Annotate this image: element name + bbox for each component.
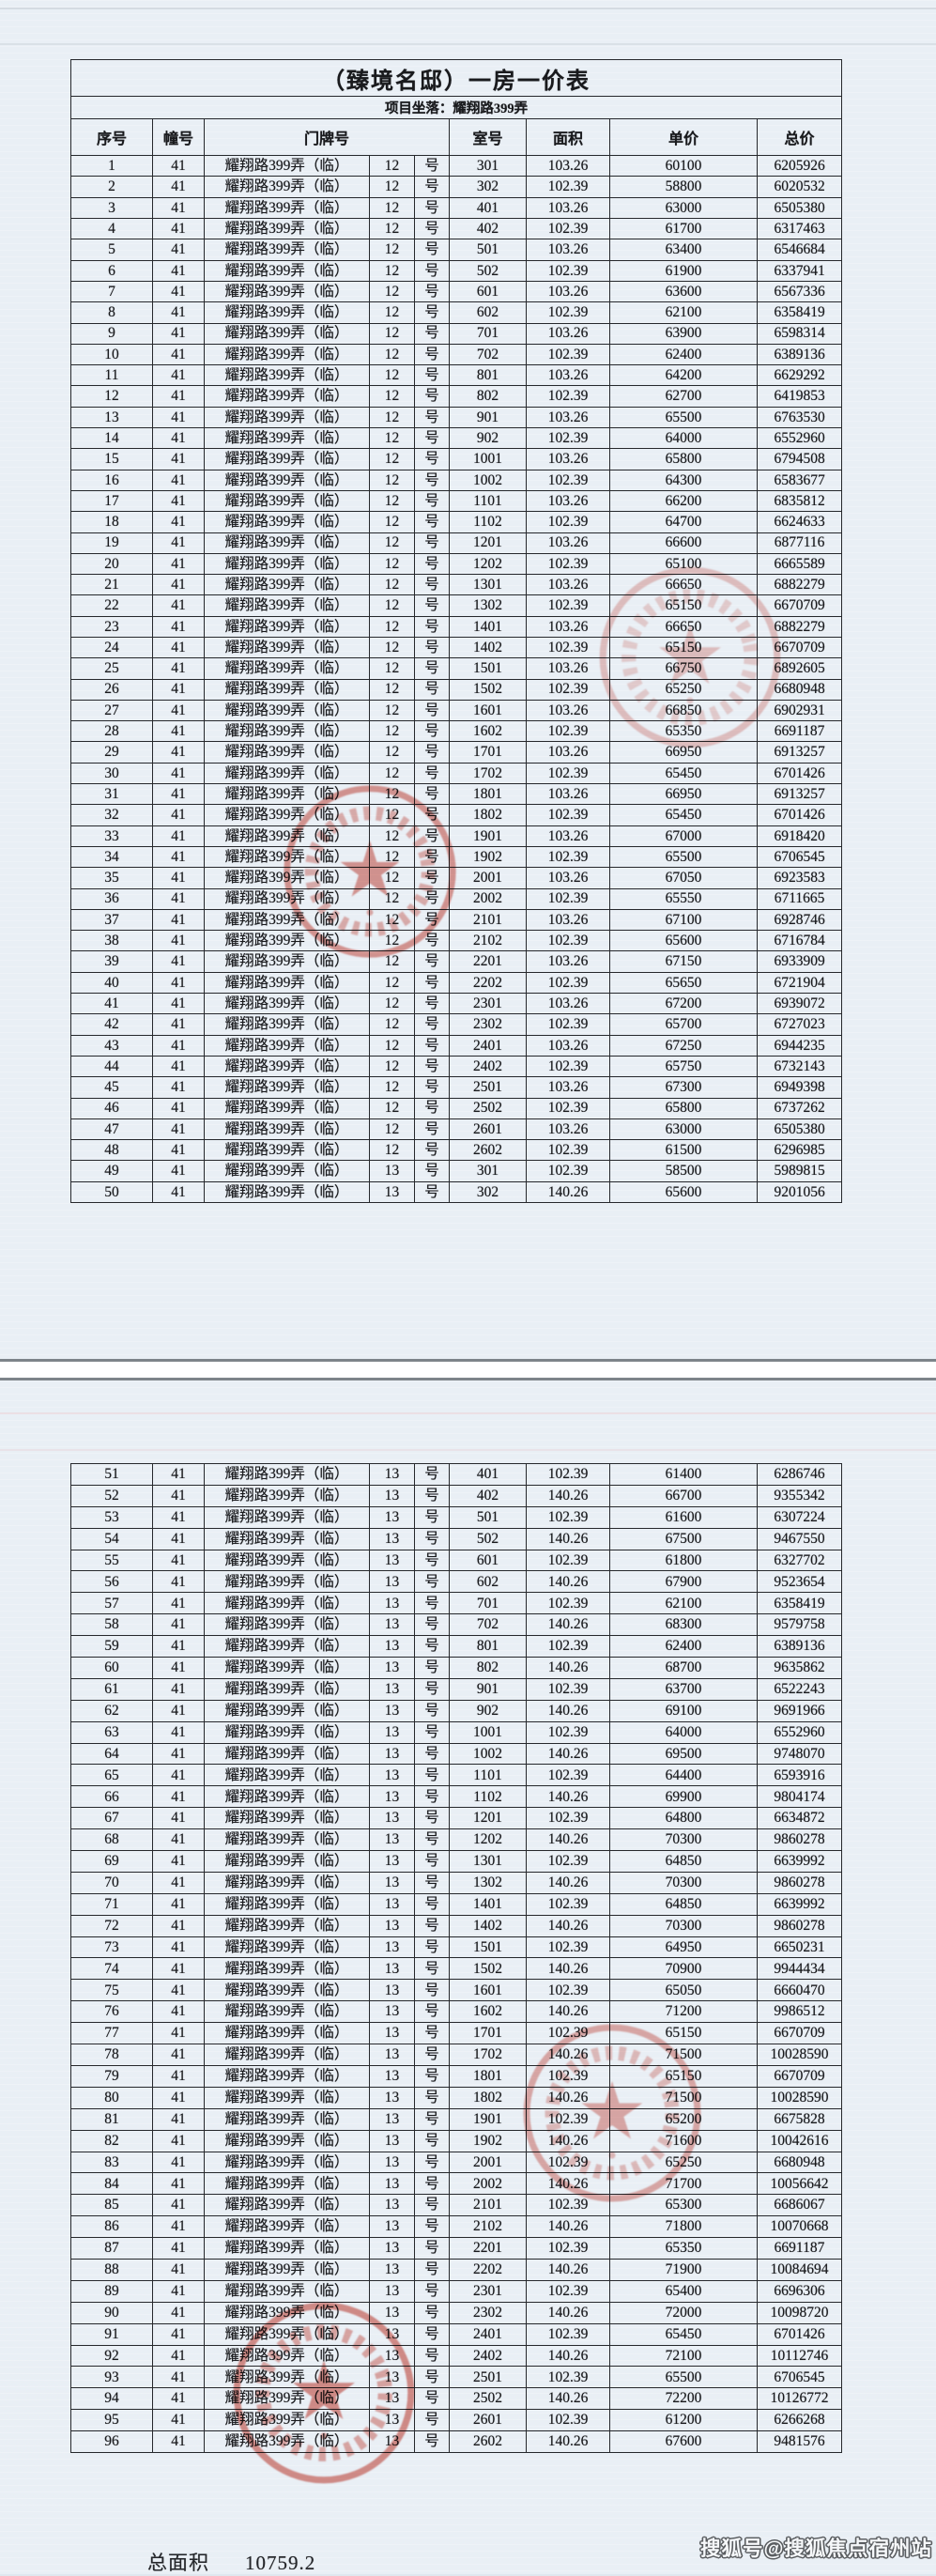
unit-price-cell: 64400 xyxy=(610,1765,758,1786)
street-cell: 耀翔路399弄（临） xyxy=(205,260,370,281)
room-cell: 1801 xyxy=(450,784,527,805)
street-cell: 耀翔路399弄（临） xyxy=(205,1464,370,1486)
door-suffix-cell: 号 xyxy=(415,2259,450,2280)
street-cell: 耀翔路399弄（临） xyxy=(205,2238,370,2260)
street-cell: 耀翔路399弄（临） xyxy=(205,742,370,763)
seq-cell: 74 xyxy=(71,1958,153,1980)
door-number-cell: 12 xyxy=(370,532,415,553)
area-cell: 102.39 xyxy=(527,721,610,742)
street-cell: 耀翔路399弄（临） xyxy=(205,1593,370,1614)
table-row: 4941耀翔路399弄（临）13号301102.39585005989815 xyxy=(71,1161,842,1181)
door-number-cell: 12 xyxy=(370,365,415,386)
table-row: 6741耀翔路399弄（临）13号1201102.39648006634872 xyxy=(71,1808,842,1829)
street-cell: 耀翔路399弄（临） xyxy=(205,239,370,260)
door-suffix-cell: 号 xyxy=(415,2216,450,2238)
area-cell: 102.39 xyxy=(527,1056,610,1076)
street-cell: 耀翔路399弄（临） xyxy=(205,616,370,637)
seq-cell: 60 xyxy=(71,1658,153,1679)
building-cell: 41 xyxy=(153,1571,205,1593)
building-cell: 41 xyxy=(153,679,205,700)
street-cell: 耀翔路399弄（临） xyxy=(205,1118,370,1139)
col-header-total-price: 总价 xyxy=(758,118,842,155)
unit-price-cell: 63000 xyxy=(610,1118,758,1139)
street-cell: 耀翔路399弄（临） xyxy=(205,2087,370,2108)
door-suffix-cell: 号 xyxy=(415,721,450,742)
street-cell: 耀翔路399弄（临） xyxy=(205,470,370,490)
door-number-cell: 13 xyxy=(370,1593,415,1614)
table-row: 9641耀翔路399弄（临）13号2602140.26676009481576 xyxy=(71,2431,842,2453)
room-cell: 1301 xyxy=(450,1851,527,1873)
unit-price-cell: 65450 xyxy=(610,763,758,783)
street-cell: 耀翔路399弄（临） xyxy=(205,532,370,553)
unit-price-cell: 67600 xyxy=(610,2431,758,2453)
building-cell: 41 xyxy=(153,658,205,679)
door-suffix-cell: 号 xyxy=(415,1893,450,1915)
unit-price-cell: 64800 xyxy=(610,1808,758,1829)
street-cell: 耀翔路399弄（临） xyxy=(205,658,370,679)
room-cell: 1502 xyxy=(450,679,527,700)
scanned-page-2: 5141耀翔路399弄（临）13号401102.3961400628674652… xyxy=(0,1381,936,2574)
door-number-cell: 13 xyxy=(370,2345,415,2367)
table-row: 7641耀翔路399弄（临）13号1602140.26712009986512 xyxy=(71,2001,842,2023)
table-row: 9141耀翔路399弄（临）13号2401102.39654506701426 xyxy=(71,2323,842,2345)
area-cell: 140.26 xyxy=(527,2001,610,2023)
street-cell: 耀翔路399弄（临） xyxy=(205,721,370,742)
unit-price-cell: 61500 xyxy=(610,1140,758,1161)
door-suffix-cell: 号 xyxy=(415,197,450,218)
total-price-cell: 9355342 xyxy=(758,1485,842,1506)
door-number-cell: 12 xyxy=(370,407,415,427)
unit-price-cell: 65350 xyxy=(610,2238,758,2260)
table-row: 2441耀翔路399弄（临）12号1402102.39651506670709 xyxy=(71,638,842,658)
area-cell: 103.26 xyxy=(527,825,610,846)
table-row: 2941耀翔路399弄（临）12号1701103.26669506913257 xyxy=(71,742,842,763)
table-row: 2741耀翔路399弄（临）12号1601103.26668506902931 xyxy=(71,700,842,720)
total-price-cell: 6020532 xyxy=(758,177,842,197)
total-price-cell: 6598314 xyxy=(758,323,842,344)
table-row: 9041耀翔路399弄（临）13号2302140.267200010098720 xyxy=(71,2302,842,2323)
area-cell: 103.26 xyxy=(527,281,610,301)
total-price-cell: 6794508 xyxy=(758,449,842,470)
room-cell: 1001 xyxy=(450,1721,527,1743)
building-cell: 41 xyxy=(153,532,205,553)
door-number-cell: 12 xyxy=(370,470,415,490)
table-row: 4441耀翔路399弄（临）12号2402102.39657506732143 xyxy=(71,1056,842,1076)
street-cell: 耀翔路399弄（临） xyxy=(205,1743,370,1765)
door-suffix-cell: 号 xyxy=(415,2388,450,2410)
door-suffix-cell: 号 xyxy=(415,1678,450,1700)
room-cell: 1202 xyxy=(450,553,527,574)
unit-price-cell: 69900 xyxy=(610,1786,758,1808)
seq-cell: 41 xyxy=(71,994,153,1014)
unit-price-cell: 66750 xyxy=(610,658,758,679)
area-cell: 140.26 xyxy=(527,2044,610,2066)
area-cell: 102.39 xyxy=(527,1464,610,1486)
seq-cell: 91 xyxy=(71,2323,153,2345)
room-cell: 1001 xyxy=(450,449,527,470)
street-cell: 耀翔路399弄（临） xyxy=(205,931,370,951)
street-cell: 耀翔路399弄（临） xyxy=(205,1181,370,1202)
seq-cell: 52 xyxy=(71,1485,153,1506)
seq-cell: 5 xyxy=(71,239,153,260)
door-suffix-cell: 号 xyxy=(415,1980,450,2001)
table-row: 6341耀翔路399弄（临）13号1001102.39640006552960 xyxy=(71,1721,842,1743)
table-row: 3741耀翔路399弄（临）12号2101103.26671006928746 xyxy=(71,909,842,930)
seq-cell: 57 xyxy=(71,1593,153,1614)
area-cell: 103.26 xyxy=(527,742,610,763)
unit-price-cell: 65800 xyxy=(610,449,758,470)
room-cell: 1802 xyxy=(450,2087,527,2108)
door-number-cell: 12 xyxy=(370,868,415,888)
table-row: 8941耀翔路399弄（临）13号2301102.39654006696306 xyxy=(71,2280,842,2302)
unit-price-cell: 65150 xyxy=(610,2065,758,2087)
table-row: 1341耀翔路399弄（临）12号901103.26655006763530 xyxy=(71,407,842,427)
room-cell: 701 xyxy=(450,323,527,344)
door-number-cell: 13 xyxy=(370,2023,415,2044)
street-cell: 耀翔路399弄（临） xyxy=(205,449,370,470)
room-cell: 1101 xyxy=(450,490,527,511)
building-cell: 41 xyxy=(153,616,205,637)
door-number-cell: 12 xyxy=(370,575,415,595)
building-cell: 41 xyxy=(153,512,205,532)
room-cell: 2402 xyxy=(450,1056,527,1076)
building-cell: 41 xyxy=(153,2001,205,2023)
door-number-cell: 12 xyxy=(370,909,415,930)
door-number-cell: 12 xyxy=(370,700,415,720)
room-cell: 1102 xyxy=(450,1786,527,1808)
door-number-cell: 12 xyxy=(370,260,415,281)
door-number-cell: 12 xyxy=(370,638,415,658)
street-cell: 耀翔路399弄（临） xyxy=(205,2388,370,2410)
street-cell: 耀翔路399弄（临） xyxy=(205,2410,370,2431)
area-cell: 140.26 xyxy=(527,2130,610,2152)
seq-cell: 17 xyxy=(71,490,153,511)
total-price-cell: 6680948 xyxy=(758,679,842,700)
total-price-cell: 9986512 xyxy=(758,2001,842,2023)
street-cell: 耀翔路399弄（临） xyxy=(205,1658,370,1679)
door-suffix-cell: 号 xyxy=(415,1506,450,1528)
area-cell: 102.39 xyxy=(527,302,610,323)
total-price-cell: 6727023 xyxy=(758,1014,842,1035)
unit-price-cell: 68300 xyxy=(610,1614,758,1636)
door-number-cell: 12 xyxy=(370,721,415,742)
room-cell: 1902 xyxy=(450,2130,527,2152)
street-cell: 耀翔路399弄（临） xyxy=(205,2023,370,2044)
total-price-cell: 6882279 xyxy=(758,575,842,595)
seq-cell: 8 xyxy=(71,302,153,323)
total-price-cell: 10042616 xyxy=(758,2130,842,2152)
door-suffix-cell: 号 xyxy=(415,1915,450,1936)
room-cell: 302 xyxy=(450,1181,527,1202)
unit-price-cell: 72200 xyxy=(610,2388,758,2410)
seq-cell: 96 xyxy=(71,2431,153,2453)
unit-price-cell: 64200 xyxy=(610,365,758,386)
unit-price-cell: 67900 xyxy=(610,1571,758,1593)
total-price-cell: 6716784 xyxy=(758,931,842,951)
door-number-cell: 12 xyxy=(370,323,415,344)
total-price-cell: 6701426 xyxy=(758,763,842,783)
street-cell: 耀翔路399弄（临） xyxy=(205,2431,370,2453)
total-price-cell: 6763530 xyxy=(758,407,842,427)
table-row: 8141耀翔路399弄（临）13号1901102.39652006675828 xyxy=(71,2108,842,2130)
total-price-cell: 6701426 xyxy=(758,2323,842,2345)
street-cell: 耀翔路399弄（临） xyxy=(205,1980,370,2001)
door-suffix-cell: 号 xyxy=(415,1808,450,1829)
seq-cell: 68 xyxy=(71,1829,153,1851)
total-price-cell: 9860278 xyxy=(758,1872,842,1893)
total-price-cell: 6337941 xyxy=(758,260,842,281)
seq-cell: 51 xyxy=(71,1464,153,1486)
seq-cell: 15 xyxy=(71,449,153,470)
total-price-cell: 6882279 xyxy=(758,616,842,637)
seq-cell: 37 xyxy=(71,909,153,930)
building-cell: 41 xyxy=(153,239,205,260)
street-cell: 耀翔路399弄（临） xyxy=(205,512,370,532)
table-row: 8541耀翔路399弄（临）13号2101102.39653006686067 xyxy=(71,2195,842,2216)
area-cell: 102.39 xyxy=(527,260,610,281)
total-price-cell: 6546684 xyxy=(758,239,842,260)
total-price-cell: 6721904 xyxy=(758,972,842,993)
area-cell: 140.26 xyxy=(527,1872,610,1893)
door-suffix-cell: 号 xyxy=(415,1077,450,1098)
building-cell: 41 xyxy=(153,1636,205,1658)
door-number-cell: 13 xyxy=(370,1636,415,1658)
room-cell: 2301 xyxy=(450,994,527,1014)
area-cell: 140.26 xyxy=(527,1571,610,1593)
total-price-cell: 9635862 xyxy=(758,1658,842,1679)
door-suffix-cell: 号 xyxy=(415,616,450,637)
total-price-cell: 6296985 xyxy=(758,1140,842,1161)
unit-price-cell: 65100 xyxy=(610,553,758,574)
table-row: 7441耀翔路399弄（临）13号1502140.26709009944434 xyxy=(71,1958,842,1980)
unit-price-cell: 65350 xyxy=(610,721,758,742)
door-suffix-cell: 号 xyxy=(415,2044,450,2066)
table-row: 741耀翔路399弄（临）12号601103.26636006567336 xyxy=(71,281,842,301)
area-cell: 140.26 xyxy=(527,2345,610,2367)
unit-price-cell: 65700 xyxy=(610,1014,758,1035)
door-number-cell: 12 xyxy=(370,156,415,177)
unit-price-cell: 71600 xyxy=(610,2130,758,2152)
door-number-cell: 12 xyxy=(370,1014,415,1035)
seq-cell: 1 xyxy=(71,156,153,177)
unit-price-cell: 65200 xyxy=(610,2108,758,2130)
total-price-cell: 6629292 xyxy=(758,365,842,386)
area-cell: 103.26 xyxy=(527,575,610,595)
building-cell: 41 xyxy=(153,868,205,888)
door-number-cell: 13 xyxy=(370,1658,415,1679)
street-cell: 耀翔路399弄（临） xyxy=(205,951,370,972)
area-cell: 102.39 xyxy=(527,1593,610,1614)
area-cell: 102.39 xyxy=(527,470,610,490)
seq-cell: 24 xyxy=(71,638,153,658)
col-header-building: 幢号 xyxy=(153,118,205,155)
area-cell: 140.26 xyxy=(527,1528,610,1550)
street-cell: 耀翔路399弄（临） xyxy=(205,575,370,595)
area-cell: 102.39 xyxy=(527,2367,610,2388)
door-suffix-cell: 号 xyxy=(415,2238,450,2260)
door-suffix-cell: 号 xyxy=(415,2345,450,2367)
seq-cell: 69 xyxy=(71,1851,153,1873)
area-cell: 103.26 xyxy=(527,868,610,888)
table-row: 2341耀翔路399弄（临）12号1401103.26666506882279 xyxy=(71,616,842,637)
street-cell: 耀翔路399弄（临） xyxy=(205,2130,370,2152)
total-price-cell: 10070668 xyxy=(758,2216,842,2238)
table-row: 9241耀翔路399弄（临）13号2402140.267210010112746 xyxy=(71,2345,842,2367)
door-number-cell: 12 xyxy=(370,344,415,364)
scanned-page-1: （臻境名邸）一房一价表 项目坐落：耀翔路399弄 序号 幢号 门牌号 室号 面积… xyxy=(0,0,936,1359)
room-cell: 2501 xyxy=(450,1077,527,1098)
door-suffix-cell: 号 xyxy=(415,1464,450,1486)
building-cell: 41 xyxy=(153,1872,205,1893)
table-row: 1541耀翔路399弄（临）12号1001103.26658006794508 xyxy=(71,449,842,470)
street-cell: 耀翔路399弄（临） xyxy=(205,846,370,867)
street-cell: 耀翔路399弄（临） xyxy=(205,1571,370,1593)
building-cell: 41 xyxy=(153,1550,205,1571)
table-row: 7941耀翔路399弄（临）13号1801102.39651506670709 xyxy=(71,2065,842,2087)
door-suffix-cell: 号 xyxy=(415,2065,450,2087)
street-cell: 耀翔路399弄（临） xyxy=(205,2044,370,2066)
room-cell: 1501 xyxy=(450,1936,527,1958)
door-suffix-cell: 号 xyxy=(415,784,450,805)
street-cell: 耀翔路399弄（临） xyxy=(205,638,370,658)
seq-cell: 75 xyxy=(71,1980,153,2001)
seq-cell: 34 xyxy=(71,846,153,867)
total-price-cell: 6835812 xyxy=(758,490,842,511)
seq-cell: 36 xyxy=(71,888,153,909)
total-price-cell: 9691966 xyxy=(758,1700,842,1721)
room-cell: 1702 xyxy=(450,763,527,783)
room-cell: 502 xyxy=(450,260,527,281)
table-row: 1041耀翔路399弄（临）12号702102.39624006389136 xyxy=(71,344,842,364)
door-suffix-cell: 号 xyxy=(415,512,450,532)
street-cell: 耀翔路399弄（临） xyxy=(205,1936,370,1958)
street-cell: 耀翔路399弄（临） xyxy=(205,2302,370,2323)
total-price-cell: 9860278 xyxy=(758,1829,842,1851)
seq-cell: 38 xyxy=(71,931,153,951)
unit-price-cell: 68700 xyxy=(610,1658,758,1679)
street-cell: 耀翔路399弄（临） xyxy=(205,1161,370,1181)
area-cell: 102.39 xyxy=(527,177,610,197)
door-number-cell: 12 xyxy=(370,951,415,972)
table-row: 3441耀翔路399弄（临）12号1902102.39655006706545 xyxy=(71,846,842,867)
table-row: 7541耀翔路399弄（临）13号1601102.39650506660470 xyxy=(71,1980,842,2001)
room-cell: 902 xyxy=(450,1700,527,1721)
seq-cell: 90 xyxy=(71,2302,153,2323)
area-cell: 103.26 xyxy=(527,700,610,720)
room-cell: 402 xyxy=(450,1485,527,1506)
door-suffix-cell: 号 xyxy=(415,1571,450,1593)
building-cell: 41 xyxy=(153,1118,205,1139)
door-number-cell: 13 xyxy=(370,2108,415,2130)
area-cell: 102.39 xyxy=(527,1161,610,1181)
area-cell: 102.39 xyxy=(527,638,610,658)
seq-cell: 80 xyxy=(71,2087,153,2108)
total-price-cell: 6933909 xyxy=(758,951,842,972)
seq-cell: 58 xyxy=(71,1614,153,1636)
table-row: 5841耀翔路399弄（临）13号702140.26683009579758 xyxy=(71,1614,842,1636)
room-cell: 2401 xyxy=(450,2323,527,2345)
door-number-cell: 13 xyxy=(370,2280,415,2302)
door-number-cell: 12 xyxy=(370,553,415,574)
room-cell: 1002 xyxy=(450,470,527,490)
unit-price-cell: 71500 xyxy=(610,2087,758,2108)
room-cell: 1602 xyxy=(450,2001,527,2023)
table-row: 1441耀翔路399弄（临）12号902102.39640006552960 xyxy=(71,428,842,449)
building-cell: 41 xyxy=(153,156,205,177)
door-number-cell: 13 xyxy=(370,1958,415,1980)
building-cell: 41 xyxy=(153,2108,205,2130)
unit-price-cell: 63900 xyxy=(610,323,758,344)
room-cell: 402 xyxy=(450,219,527,239)
door-suffix-cell: 号 xyxy=(415,2173,450,2195)
area-cell: 140.26 xyxy=(527,1485,610,1506)
col-header-area: 面积 xyxy=(527,118,610,155)
building-cell: 41 xyxy=(153,825,205,846)
seq-cell: 48 xyxy=(71,1140,153,1161)
room-cell: 2202 xyxy=(450,2259,527,2280)
seq-cell: 39 xyxy=(71,951,153,972)
door-suffix-cell: 号 xyxy=(415,2130,450,2152)
area-cell: 140.26 xyxy=(527,1958,610,1980)
street-cell: 耀翔路399弄（临） xyxy=(205,1700,370,1721)
street-cell: 耀翔路399弄（临） xyxy=(205,386,370,407)
unit-price-cell: 70300 xyxy=(610,1872,758,1893)
area-cell: 140.26 xyxy=(527,1743,610,1765)
door-number-cell: 13 xyxy=(370,1678,415,1700)
unit-price-cell: 65500 xyxy=(610,846,758,867)
unit-price-cell: 67000 xyxy=(610,825,758,846)
building-cell: 41 xyxy=(153,1056,205,1076)
room-cell: 1402 xyxy=(450,638,527,658)
seq-cell: 81 xyxy=(71,2108,153,2130)
street-cell: 耀翔路399弄（临） xyxy=(205,1808,370,1829)
total-price-cell: 10056642 xyxy=(758,2173,842,2195)
table-row: 3941耀翔路399弄（临）12号2201103.26671506933909 xyxy=(71,951,842,972)
unit-price-cell: 70300 xyxy=(610,1829,758,1851)
building-cell: 41 xyxy=(153,2173,205,2195)
total-price-cell: 6696306 xyxy=(758,2280,842,2302)
door-number-cell: 12 xyxy=(370,679,415,700)
area-cell: 140.26 xyxy=(527,2302,610,2323)
door-number-cell: 13 xyxy=(370,1528,415,1550)
total-price-cell: 9860278 xyxy=(758,1915,842,1936)
seq-cell: 2 xyxy=(71,177,153,197)
room-cell: 2302 xyxy=(450,2302,527,2323)
door-number-cell: 12 xyxy=(370,1118,415,1139)
table-title-row: （臻境名邸）一房一价表 xyxy=(71,60,842,97)
area-cell: 102.39 xyxy=(527,2410,610,2431)
seq-cell: 93 xyxy=(71,2367,153,2388)
area-cell: 102.39 xyxy=(527,1936,610,1958)
total-price-cell: 6944235 xyxy=(758,1035,842,1056)
total-price-cell: 6892605 xyxy=(758,658,842,679)
door-number-cell: 13 xyxy=(370,2195,415,2216)
building-cell: 41 xyxy=(153,1035,205,1056)
door-suffix-cell: 号 xyxy=(415,2323,450,2345)
total-price-cell: 6307224 xyxy=(758,1506,842,1528)
door-number-cell: 12 xyxy=(370,616,415,637)
unit-price-cell: 64000 xyxy=(610,428,758,449)
table-row: 5941耀翔路399弄（临）13号801102.39624006389136 xyxy=(71,1636,842,1658)
table-row: 6441耀翔路399弄（临）13号1002140.26695009748070 xyxy=(71,1743,842,1765)
area-cell: 103.26 xyxy=(527,532,610,553)
unit-price-cell: 67250 xyxy=(610,1035,758,1056)
area-cell: 103.26 xyxy=(527,449,610,470)
door-suffix-cell: 号 xyxy=(415,1528,450,1550)
seq-cell: 87 xyxy=(71,2238,153,2260)
room-cell: 2002 xyxy=(450,2173,527,2195)
table-row: 4641耀翔路399弄（临）12号2502102.39658006737262 xyxy=(71,1098,842,1118)
